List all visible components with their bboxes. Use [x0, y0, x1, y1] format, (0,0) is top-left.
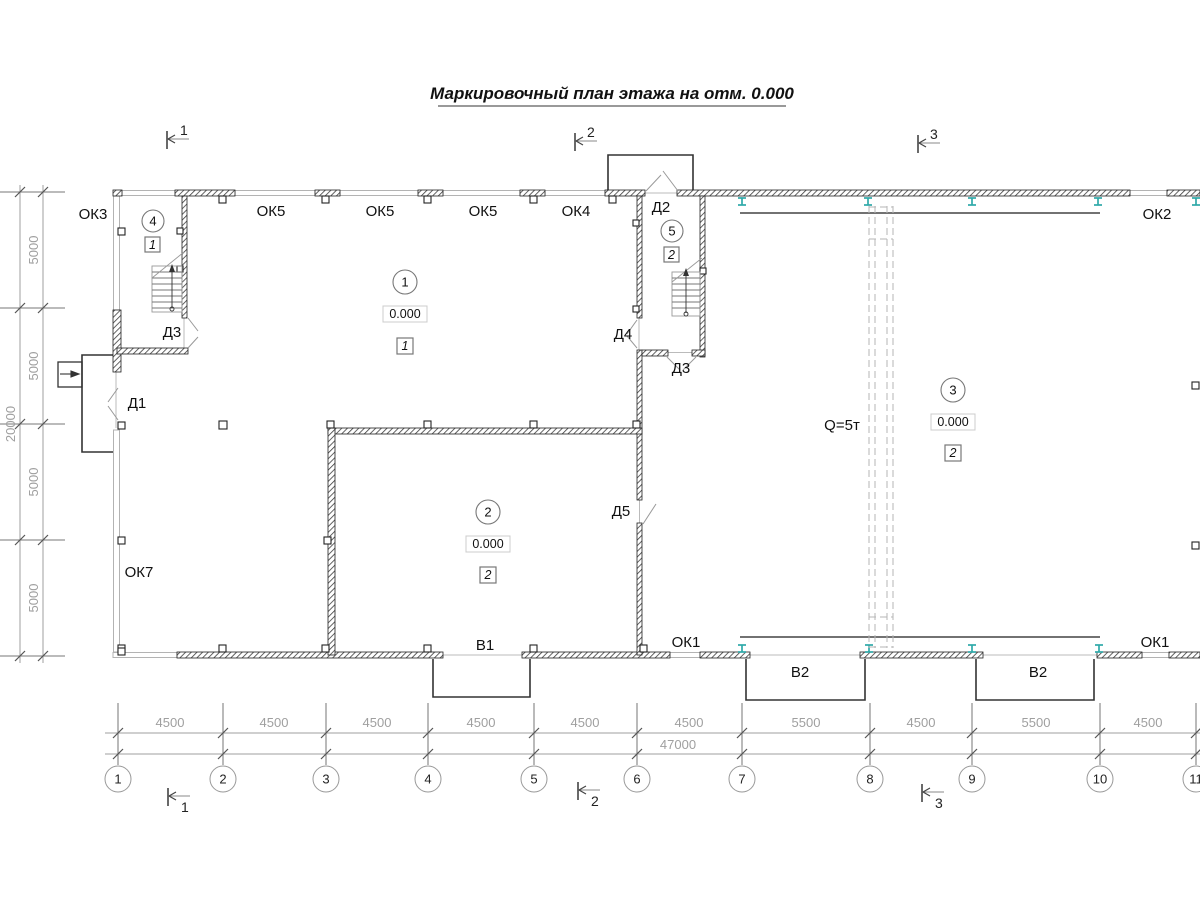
room-4-floor-type: 1: [149, 238, 156, 252]
room-marker-3: 3 0.000 2: [931, 378, 975, 461]
window-ok5-3: [443, 191, 520, 196]
label-ok1-b: ОК1: [1141, 634, 1170, 651]
section-2-top-label: 2: [587, 124, 595, 140]
grid-col-10: 10: [1093, 772, 1107, 787]
room-marker-1: 1 0.000 1: [383, 270, 427, 354]
section-3-bottom-label: 3: [935, 795, 943, 811]
room-3-floor-type: 2: [949, 446, 957, 460]
grid-extension-lines: [118, 703, 1196, 765]
window-ok1-b: [1142, 653, 1169, 658]
dim-row-1: 5000: [26, 236, 41, 265]
label-d1: Д1: [128, 395, 147, 412]
free-column: [219, 421, 227, 429]
dim-1-2: 4500: [156, 715, 185, 730]
room-2-elevation: 0.000: [472, 537, 503, 551]
grid-col-7: 7: [738, 772, 745, 787]
window-ok4: [545, 191, 605, 196]
window-ok3: [114, 196, 120, 310]
section-3-top-label: 3: [930, 126, 938, 142]
window-ok2: [1130, 191, 1167, 196]
dim-3-4: 4500: [363, 715, 392, 730]
dim-total-bottom: 47000: [660, 737, 696, 752]
room-1-floor-type: 1: [402, 339, 409, 353]
dim-4-5: 4500: [467, 715, 496, 730]
grid-col-5: 5: [530, 772, 537, 787]
label-ok3: ОК3: [79, 206, 108, 223]
label-ok7: ОК7: [125, 564, 154, 581]
steel-column-icon: [738, 198, 746, 205]
page-title: Маркировочный план этажа на отм. 0.000: [430, 84, 794, 103]
stair-up-arrow: [169, 264, 175, 272]
room-1-elevation: 0.000: [389, 307, 420, 321]
section-1-bottom-label: 1: [181, 799, 189, 815]
dim-row-3: 5000: [26, 468, 41, 497]
label-v2-a: В2: [791, 664, 809, 681]
steel-column-icon: [1095, 645, 1103, 652]
label-ok5-3: ОК5: [469, 203, 498, 220]
walls: [113, 190, 1200, 658]
grid-bubbles: [105, 766, 1200, 792]
room-3-number: 3: [949, 383, 956, 398]
grid-col-8: 8: [866, 772, 873, 787]
dim-total-left: 20000: [3, 406, 18, 442]
label-ok5-2: ОК5: [366, 203, 395, 220]
stairs-1: [152, 252, 184, 312]
dim-2-3: 4500: [260, 715, 289, 730]
window-ok5-1: [235, 191, 315, 196]
door-d3a-swing: [188, 318, 198, 348]
steel-column-icon: [968, 198, 976, 205]
grid-col-1: 1: [114, 772, 121, 787]
dim-5-6: 4500: [571, 715, 600, 730]
steel-column-icon: [968, 645, 976, 652]
dim-8-9: 4500: [907, 715, 936, 730]
label-v2-b: В2: [1029, 664, 1047, 681]
window-ok1-a: [670, 653, 700, 658]
grid-col-9: 9: [968, 772, 975, 787]
dimension-lines-bottom: [105, 733, 1200, 754]
room-3-elevation: 0.000: [937, 415, 968, 429]
steel-column-icon: [1192, 198, 1200, 205]
stairs-2: [672, 258, 702, 316]
dim-9-10: 5500: [1022, 715, 1051, 730]
grid-col-2: 2: [219, 772, 226, 787]
dim-row-4: 5000: [26, 584, 41, 613]
grid-col-3: 3: [322, 772, 329, 787]
room-1-number: 1: [401, 275, 408, 290]
crane-rails: [740, 213, 1100, 637]
label-ok4: ОК4: [562, 203, 591, 220]
label-v1: В1: [476, 637, 494, 654]
floor-plan-drawing: Маркировочный план этажа на отм. 0.000 1…: [0, 0, 1200, 900]
wall-pilaster-marks: [118, 196, 1199, 655]
steel-column-icon: [1094, 198, 1102, 205]
grid-col-11: 11: [1189, 772, 1200, 787]
section-2-bottom-label: 2: [591, 793, 599, 809]
window-ok5-2: [340, 191, 418, 196]
room-4-number: 4: [149, 214, 156, 229]
left-entry-porch: [82, 355, 117, 452]
label-ok1-a: ОК1: [672, 634, 701, 651]
room-5-floor-type: 2: [667, 248, 675, 262]
label-d5: Д5: [612, 503, 631, 520]
dim-row-2: 5000: [26, 352, 41, 381]
crane-runway-dashed: [869, 206, 893, 648]
room-marker-4: 4 1: [142, 210, 164, 252]
gate-v1-ramp: [433, 659, 530, 697]
drawing-sheet: Маркировочный план этажа на отм. 0.000 1…: [0, 0, 1200, 900]
label-d3-a: Д3: [163, 324, 182, 341]
label-crane-capacity: Q=5т: [824, 417, 860, 434]
section-1-top-label: 1: [180, 122, 188, 138]
door-d5-swing: [643, 504, 656, 524]
room-2-number: 2: [484, 505, 491, 520]
room-marker-5: 5 2: [661, 220, 683, 262]
label-d4: Д4: [614, 326, 633, 343]
label-ok2: ОК2: [1143, 206, 1172, 223]
grid-col-6: 6: [633, 772, 640, 787]
label-d2: Д2: [652, 199, 671, 216]
dim-10-11: 4500: [1134, 715, 1163, 730]
grid-col-4: 4: [424, 772, 431, 787]
room-2-floor-type: 2: [484, 568, 492, 582]
dim-7-8: 5500: [792, 715, 821, 730]
steel-column-icon: [738, 645, 746, 652]
entrance-arrow: [60, 371, 79, 377]
label-d3-b: Д3: [672, 360, 691, 377]
dim-6-7: 4500: [675, 715, 704, 730]
room-5-number: 5: [668, 224, 675, 239]
room-marker-2: 2 0.000 2: [466, 500, 510, 583]
steel-column-icon: [864, 198, 872, 205]
label-ok5-1: ОК5: [257, 203, 286, 220]
door-d2-swing: [646, 171, 678, 191]
